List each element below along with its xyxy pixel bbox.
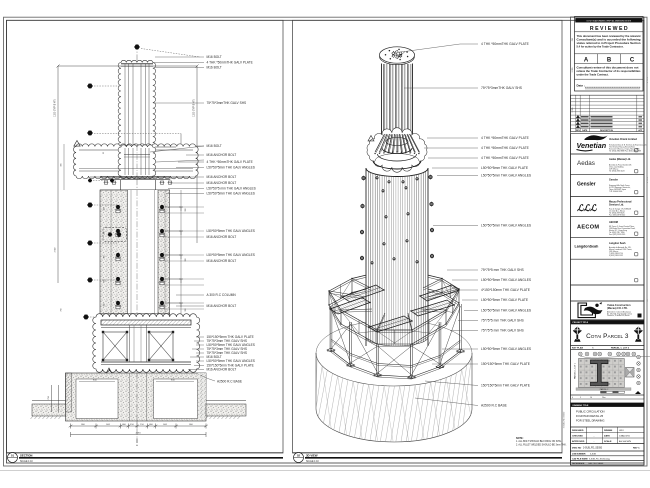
svg-text:DATE: DATE [604,435,610,438]
svg-text:L50*50*5mm THK GALV ANGLES: L50*50*5mm THK GALV ANGLES [207,359,255,363]
svg-text:Venetian Orient Limited: Venetian Orient Limited [609,138,637,141]
svg-text:L50*50*5mm THK GALV ANGLES: L50*50*5mm THK GALV ANGLES [207,192,255,196]
svg-text:L50*50*5mm THK GALV ANGLES: L50*50*5mm THK GALV ANGLES [481,174,532,178]
svg-text:2-745: 2-745 [572,68,574,73]
svg-text:NOTE:: NOTE: [516,437,524,440]
svg-text:SCALE 1:10: SCALE 1:10 [306,460,319,463]
svg-text:L50*50*5mm THK GALV ANGLES: L50*50*5mm THK GALV ANGLES [481,278,532,282]
svg-text:150*150*5mm THK GALV PLATE: 150*150*5mm THK GALV PLATE [481,362,531,366]
svg-text:This document has been reviewe: This document has been reviewed by the r… [577,35,641,38]
svg-text:Langdon Seah: Langdon Seah [609,242,626,245]
svg-text:M16 BOLT: M16 BOLT [207,55,222,59]
svg-text:PARCEL 1, LOT 2: PARCEL 1, LOT 2 [611,347,630,350]
svg-text:3-SUB_FD_S5050: 3-SUB_FD_S5050 [564,411,566,428]
svg-text:Consultant review of this docu: Consultant review of this document does … [577,67,639,70]
svg-text:B: B [607,57,612,63]
svg-text:Tel: (853) 2882 8888 Fax: (85: Tel: (853) 2882 8888 Fax: (853) 2882 888… [609,151,641,153]
svg-text:under the Trade Contract.: under the Trade Contract. [577,73,609,76]
svg-text:Date :: Date : [577,84,585,88]
svg-text:DATE: DATE [582,129,588,132]
svg-text:75*75*3mmTHK GALV SHS: 75*75*3mmTHK GALV SHS [207,101,247,105]
svg-text:ℒℒℒ: ℒℒℒ [577,203,597,213]
svg-text:KEY PLAN: KEY PLAN [572,347,583,350]
svg-text:Gensler: Gensler [609,179,618,182]
svg-text:Consultant(s) and is accorded: Consultant(s) and is accorded the follow… [577,39,642,42]
svg-text:REV C: REV C [633,447,640,449]
svg-text:300: 300 [104,232,106,235]
svg-text:3-SUB_FD_S5050: 3-SUB_FD_S5050 [583,447,603,449]
svg-text:32: 32 [103,152,105,154]
svg-text:JOB NUMBER: JOB NUMBER [572,454,586,456]
svg-text:75*75*3mmTHK GALV SHS: 75*75*3mmTHK GALV SHS [481,86,523,90]
svg-text:L50*50*5mm THK GALV ANGLES: L50*50*5mm THK GALV ANGLES [207,166,255,170]
svg-text:4 THK *50mmTHK GALV PLATE: 4 THK *50mmTHK GALV PLATE [481,156,530,160]
svg-text:3-SUB: 3-SUB [590,454,597,456]
svg-text:300: 300 [104,208,106,211]
svg-text:LWO: LWO [619,430,624,432]
svg-text:PARCEL 1, LOT 1: PARCEL 1, LOT 1 [574,362,577,379]
svg-text:(Macau) CO. LTD.: (Macau) CO. LTD. [607,307,628,310]
svg-text:2. ALL FILLET WELDED SHOULD BE: 2. ALL FILLET WELDED SHOULD BE 3mm THK. [516,444,567,447]
svg-text:M16 BOLT: M16 BOLT [207,66,222,70]
svg-text:-745: -745 [572,38,574,42]
svg-text:Fax: (853) 2878 6622: Fax: (853) 2878 6622 [609,215,625,217]
svg-text:SCALE 1:10: SCALE 1:10 [20,460,33,463]
svg-text:4 THK *50mmTHK GALV PLATE: 4 THK *50mmTHK GALV PLATE [481,42,530,46]
svg-text:75*75*5 mm THK GALV SHS: 75*75*5 mm THK GALV SHS [481,329,525,333]
svg-text:SECTION: SECTION [20,453,32,457]
svg-text:FOUNTAIN DETAIL 25: FOUNTAIN DETAIL 25 [576,414,604,418]
svg-text:PUBLIC CIRCULATION: PUBLIC CIRCULATION [576,410,605,414]
svg-text:1. ALL BOLT SHOULD BE FIXING O: 1. ALL BOLT SHOULD BE FIXING ON SITE. [516,440,562,443]
svg-text:300: 300 [104,256,106,259]
svg-text:20m: 20m [602,397,606,399]
svg-text:AECOM: AECOM [577,225,599,231]
svg-text:PARCEL 2: PARCEL 2 [600,388,609,391]
svg-text:Gensler: Gensler [577,182,596,188]
svg-text:M16 ANCHOR BOLT: M16 ANCHOR BOLT [207,368,237,372]
svg-text:C: C [630,57,635,63]
svg-text:5.4 for action by the Trade Co: 5.4 for action by the Trade Contractor. [577,45,624,48]
svg-text:2 7 4 5: 2 7 4 5 [647,76,649,83]
svg-text:2594: 2594 [136,433,142,435]
svg-text:Venetian: Venetian [577,141,607,150]
svg-text:COTAI PARCEL 3: COTAI PARCEL 3 [586,333,629,340]
svg-text:Aedas: Aedas [577,160,595,167]
svg-text:150*150*5mm THK GALV PLATE: 150*150*5mm THK GALV PLATE [481,384,531,388]
svg-text:5: 5 [580,397,581,399]
svg-text:CAD FILE NAME: CAD FILE NAME [572,457,588,460]
svg-text:1150 (TYP B HT): 1150 (TYP B HT) [194,99,196,117]
svg-text:4*150*150mm THK GALV PLATE: 4*150*150mm THK GALV PLATE [481,288,531,292]
svg-text:M16 ANCHOR BOLT: M16 ANCHOR BOLT [207,175,237,179]
svg-text:300: 300 [104,304,106,307]
svg-text:APPROVED: APPROVED [572,440,585,443]
svg-text:4 THK *50mmTHK GALV PLATE: 4 THK *50mmTHK GALV PLATE [207,160,253,164]
svg-text:CHECKED: CHECKED [572,436,583,438]
svg-text:M16 ANCHOR BOLT: M16 ANCHOR BOLT [207,181,237,185]
svg-text:T 81.3.6406.9300: T 81.3.6406.9300 [609,191,622,193]
svg-text:L50*50*5mm THK GALV PLATE: L50*50*5mm THK GALV PLATE [481,166,529,170]
svg-text:A: A [584,57,589,63]
svg-text:REFERENCE: REFERENCE [572,463,585,465]
svg-text:L50*50*5mm THK GALV ANGLES: L50*50*5mm THK GALV ANGLES [481,347,532,351]
svg-text:F (853) 2833 1532: F (853) 2833 1532 [609,255,623,257]
svg-text:0: 0 [572,397,573,399]
svg-text:Services Ltd.: Services Ltd. [609,204,624,207]
svg-text:Fax: (852) 2353 4559: Fax: (852) 2353 4559 [609,234,625,236]
svg-text:relieve the Trade Contractor o: relieve the Trade Contractor of its resp… [577,70,642,73]
svg-text:14/AUG/15: 14/AUG/15 [619,435,631,438]
svg-text:CAD FILE NAME: CAD FILE NAME [588,462,604,465]
svg-text:A2500 R.C BASE: A2500 R.C BASE [481,404,508,408]
svg-text:SCALE: SCALE [604,440,612,443]
svg-text:3D VIEW: 3D VIEW [306,453,318,457]
svg-text:A2500 R.C BASE: A2500 R.C BASE [217,379,242,383]
svg-text:A 300 R.C COLUMN: A 300 R.C COLUMN [207,293,237,297]
svg-text:status referred to in Project: status referred to in Project Procedure … [577,42,642,45]
svg-text:R E V I E W E D: R E V I E W E D [590,26,628,32]
svg-text:DWG NO: DWG NO [572,447,582,449]
svg-text:2 7 4 5: 2 7 4 5 [647,176,649,183]
svg-text:Tel: (853) 2833 1023: Tel: (853) 2833 1023 [609,171,625,173]
svg-text:M16 ANCHOR BOLT: M16 ANCHOR BOLT [207,153,237,157]
svg-text:1150 (TYP B HT): 1150 (TYP B HT) [55,99,57,117]
svg-text:DESCRIPTION: DESCRIPTION [600,130,614,132]
svg-text:4 THK *50mmTHK GALV PLATE: 4 THK *50mmTHK GALV PLATE [207,61,253,65]
svg-text:L50*50*5mm THK GALV ANGLES: L50*50*5mm THK GALV ANGLES [207,253,255,257]
svg-text:LangdonSeah: LangdonSeah [575,245,599,249]
svg-text:L50*50*5mm THK GALV PLATE: L50*50*5mm THK GALV PLATE [481,298,529,302]
svg-text:L50*50*5 mm THK GALV ANGLES: L50*50*5 mm THK GALV ANGLES [207,187,256,191]
svg-text:M16 BOLT: M16 BOLT [207,144,222,148]
svg-text:Comercio, 19 andar E-F, Macau: Comercio, 19 andar E-F, Macau [607,315,630,317]
svg-text:75*75*5 mm THK GALV SHS: 75*75*5 mm THK GALV SHS [481,268,525,272]
svg-text:Aedas (Macau) Ltd.: Aedas (Macau) Ltd. [609,158,631,161]
svg-text:M16 ANCHOR BOLT: M16 ANCHOR BOLT [207,235,237,239]
svg-text:L50*50*5mm THK GALV ANGLES: L50*50*5mm THK GALV ANGLES [207,229,255,233]
svg-text:4 THK *50mmTHK GALV PLATE: 4 THK *50mmTHK GALV PLATE [481,136,530,140]
svg-text:3-SUB_FD_S5050.dwg: 3-SUB_FD_S5050.dwg [589,458,610,460]
svg-text:DRAWN: DRAWN [604,429,613,432]
svg-text:DESIGNED: DESIGNED [572,430,584,432]
svg-text:M16 ANCHOR BOLT: M16 ANCHOR BOLT [207,259,237,263]
svg-text:M16 ANCHOR BOLT: M16 ANCHOR BOLT [207,304,237,308]
svg-text:L50*50*5mm THK GALV ANGLES: L50*50*5mm THK GALV ANGLES [481,309,532,313]
svg-text:10: 10 [590,397,592,399]
svg-text:AS SHOWN: AS SHOWN [619,440,631,443]
svg-text:FOR STEEL DRAWING: FOR STEEL DRAWING [576,418,604,422]
svg-text:DRAWING TITLE: DRAWING TITLE [573,404,589,407]
svg-text:L50*50*5mm THK GALV ANGLES: L50*50*5mm THK GALV ANGLES [481,224,532,228]
svg-text:75*75*5 mm THK GALV SHS: 75*75*5 mm THK GALV SHS [481,319,525,323]
svg-text:AECOM: AECOM [609,221,618,224]
svg-text:4 THK *50mmTHK GALV PLATE: 4 THK *50mmTHK GALV PLATE [481,146,530,150]
